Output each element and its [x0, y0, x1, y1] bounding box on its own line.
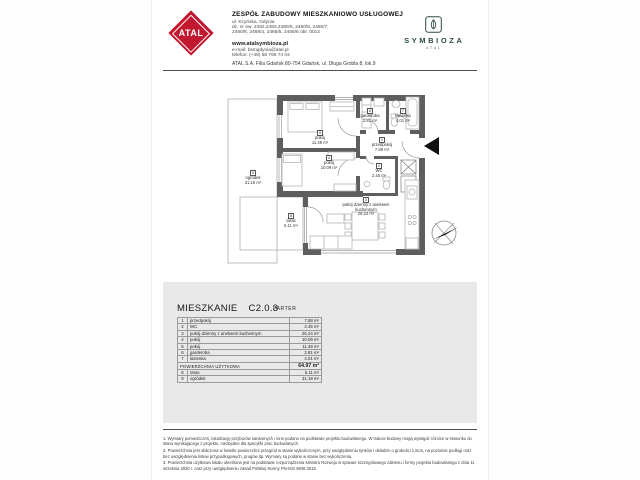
floorplan-sheet: ATAL ZESPÓŁ ZABUDOWY MIESZKANIOWO USŁUGO… [0, 0, 640, 480]
disclaimer-note-3: 3. Powierzchnia użytkowa lokalu określon… [163, 460, 477, 471]
table-total-row: POWIERZCHNIA UŻYTKOWA 64.97 m² [178, 363, 321, 370]
room-label-pokoj-4: 4 pokój 10.09 m² [307, 155, 351, 170]
disclaimer-notes: 1. Wymiary pomieszczeń, lokalizację przy… [163, 436, 477, 473]
room-label-pokoj-dzienny: 3 pokój dzienny z aneksem kuchennym 26.2… [339, 197, 393, 217]
room-label-ogrodek: 9 ogródek 31.18 m² [231, 170, 275, 185]
room-label-lazienka: 7 łazienka 4.01 m² [381, 108, 425, 123]
disclaimer-note-2: 2. Powierzchnia jest obliczona w świetle… [163, 448, 477, 459]
entrance-arrow-icon [424, 137, 439, 155]
floor-label: PARTER [273, 306, 296, 312]
wc-toilet-icon [364, 177, 390, 189]
kitchen-counter-icon [405, 180, 419, 249]
disclaimer-note-1: 1. Wymiary pomieszczeń, lokalizację przy… [163, 436, 477, 447]
sofa-icon [310, 236, 352, 249]
washbasin-icon [392, 101, 400, 108]
atal-logo-text: ATAL [168, 28, 214, 38]
room-label-taras: 8 taras 6.11 m² [269, 213, 313, 228]
apartment-title: MIESZKANIEC2.0.3 [177, 303, 278, 314]
apartment-label: MIESZKANIE [177, 303, 238, 314]
room-label-wc: 2 WC 2.45 m² [357, 163, 401, 178]
area-table: 1 przedpokój 7.88 m² 2 WC 2.45 m² 3 pokó… [177, 317, 322, 383]
double-bed-icon [288, 102, 322, 132]
room-label-przedpokoj: 1 przedpokój 7.88 m² [360, 137, 404, 152]
table-row: 9 ogródek 31.18 m² [178, 376, 321, 382]
single-bed-icon [282, 154, 302, 186]
room-label-pokoj-5: 5 pokój 11.49 m² [298, 130, 342, 145]
footer-divider [163, 429, 477, 430]
compass-icon [432, 221, 458, 245]
